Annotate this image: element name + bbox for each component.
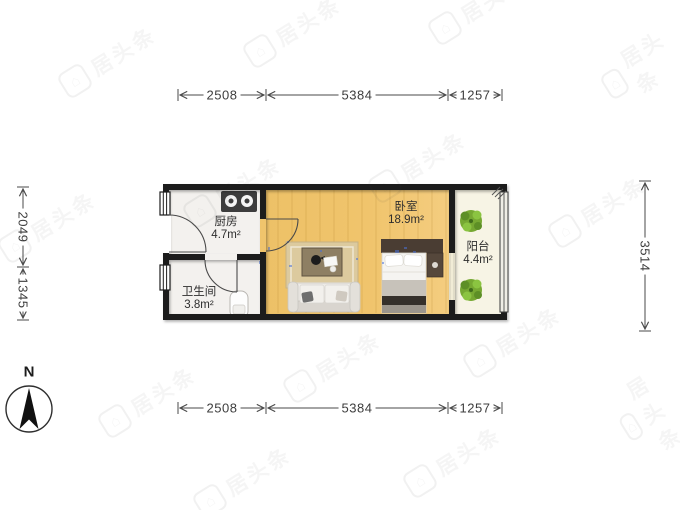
toilet-icon — [230, 291, 248, 318]
plant-icon — [460, 279, 482, 301]
dim-right-1: 3514 — [638, 238, 653, 275]
stove-icon — [221, 191, 257, 212]
room-name: 厨房 — [211, 216, 240, 229]
room-label-kitchen: 厨房 4.7m² — [211, 216, 240, 242]
dim-top-1: 2508 — [204, 88, 241, 103]
coffee-table-icon — [302, 248, 342, 276]
room-area: 4.7m² — [211, 229, 240, 242]
window-icon — [160, 265, 170, 290]
room-area: 18.9m² — [388, 214, 424, 227]
room-label-bathroom: 卫生间 3.8m² — [182, 286, 217, 312]
plant-icon — [460, 210, 482, 232]
dim-bottom-2: 5384 — [339, 401, 376, 416]
room-name: 卫生间 — [182, 286, 217, 299]
compass-icon — [6, 386, 52, 432]
room-name: 阳台 — [463, 241, 492, 254]
dim-bottom-3: 1257 — [457, 401, 494, 416]
window-icon — [160, 192, 170, 215]
dim-top-3: 1257 — [457, 88, 494, 103]
dim-left-1: 2049 — [16, 209, 31, 246]
room-area: 4.4m² — [463, 254, 492, 267]
north-label: N — [24, 364, 35, 381]
floorplan-drawing — [0, 0, 680, 510]
floorplan-image: 2508 5384 1257 2508 5384 1257 2049 1345 … — [0, 0, 680, 510]
room-label-bedroom: 卧室 18.9m² — [388, 201, 424, 227]
sofa-icon — [288, 282, 360, 312]
room-name: 卧室 — [388, 201, 424, 214]
room-area: 3.8m² — [182, 299, 217, 312]
dim-top-2: 5384 — [339, 88, 376, 103]
dim-bottom-1: 2508 — [204, 401, 241, 416]
room-label-balcony: 阳台 4.4m² — [463, 241, 492, 267]
dim-left-2: 1345 — [16, 275, 31, 312]
